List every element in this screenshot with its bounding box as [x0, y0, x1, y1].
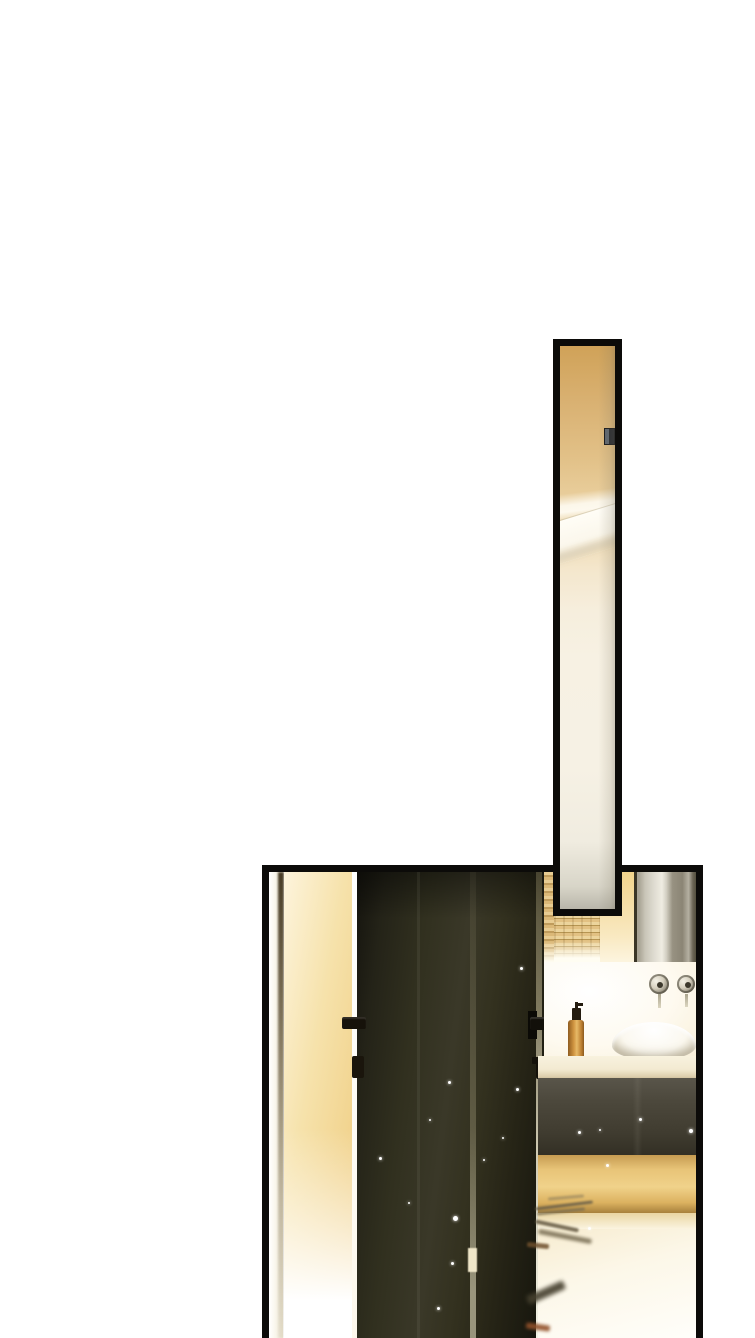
tap-spout-right	[685, 994, 688, 1007]
lit-wall-strip	[284, 872, 356, 1338]
bathroom-interior	[544, 872, 696, 1338]
sparkle-dot	[520, 967, 523, 970]
sparkle-dot	[448, 1081, 451, 1084]
mirror-edge-shade	[560, 346, 615, 909]
wall-mirror	[634, 872, 696, 967]
wall-tap-right	[677, 975, 695, 993]
door-handle-back	[342, 1017, 366, 1029]
sparkle-dot	[483, 1159, 485, 1161]
door-lock-back	[352, 1056, 364, 1078]
tall-mirror-panel	[553, 339, 622, 916]
sparkle-dot	[451, 1262, 454, 1265]
sparkle-dot	[437, 1307, 440, 1310]
wall-tap-left	[649, 974, 669, 994]
sparkle-dot	[429, 1119, 431, 1121]
sparkle-dot	[408, 1202, 410, 1204]
counter-top	[538, 1056, 696, 1080]
sparkle-dot	[606, 1164, 609, 1167]
sparkle-dot	[599, 1129, 601, 1131]
sparkle-dot	[516, 1088, 519, 1091]
door-seam	[417, 872, 420, 1338]
sparkle-dot	[502, 1137, 504, 1139]
soap-nozzle	[577, 1003, 583, 1006]
sparkle-dot	[578, 1131, 581, 1134]
door-hinge-gap	[468, 1248, 477, 1272]
soap-bottle	[568, 1020, 584, 1060]
dark-cabinet	[538, 1078, 696, 1156]
tap-spout-left	[658, 994, 661, 1008]
sparkle-dot	[453, 1216, 458, 1221]
dark-open-door	[357, 872, 544, 1338]
sparkle-dot	[639, 1118, 642, 1121]
sparkle-dot	[379, 1157, 382, 1160]
sparkle-dot	[588, 1227, 591, 1230]
bathroom-panel	[262, 865, 703, 1338]
comic-page	[0, 0, 755, 1338]
sparkle-dot	[689, 1129, 693, 1133]
